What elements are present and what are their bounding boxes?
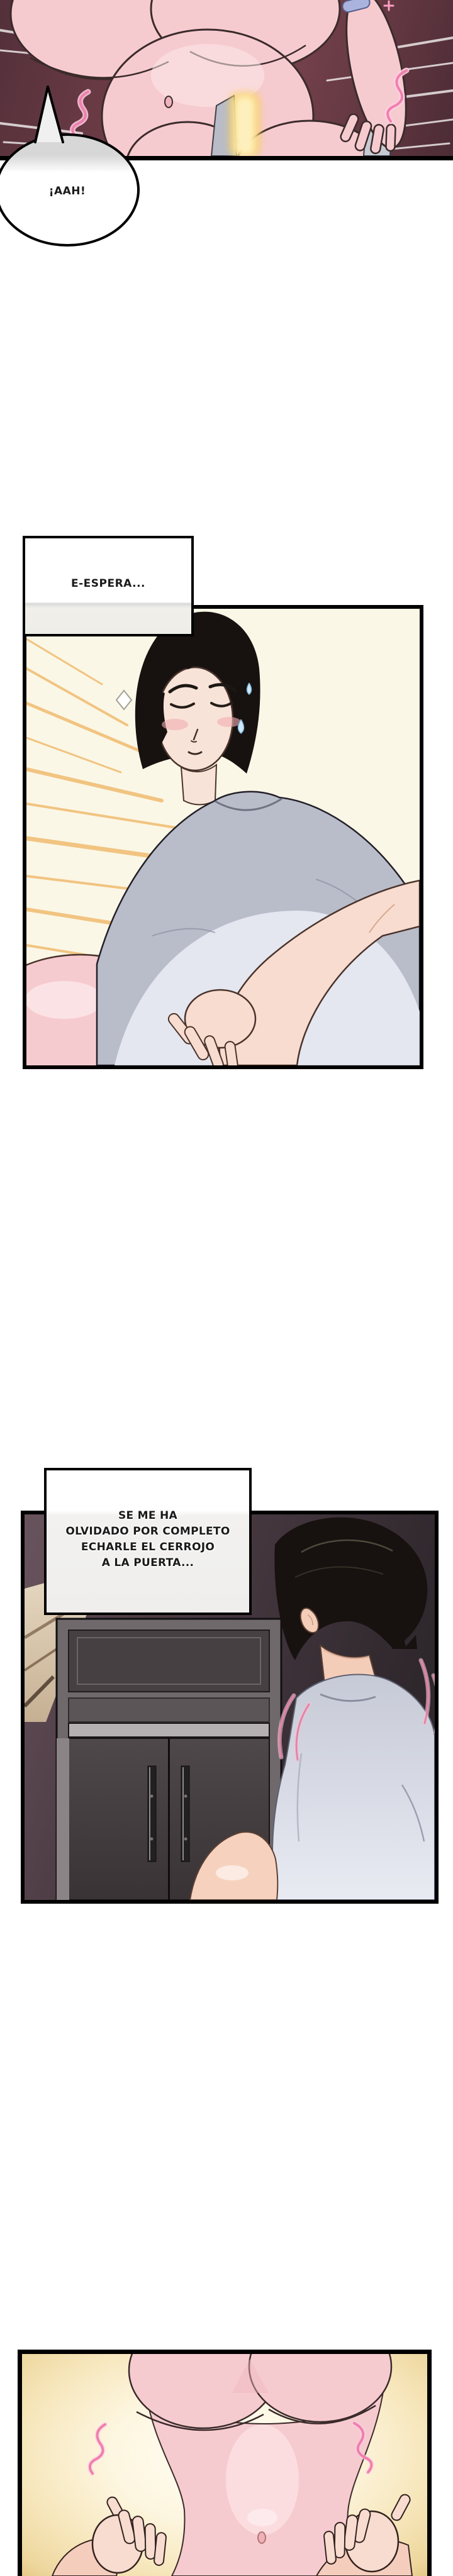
caption2-line: ECHARLE EL CERROJO [47, 1540, 249, 1555]
man-head [135, 612, 260, 805]
caption2-line: SE ME HA [47, 1508, 249, 1524]
glow-light [230, 93, 259, 156]
speech-bubble-tail [29, 84, 70, 145]
panel4-artwork [22, 2354, 427, 2576]
panel2-artwork [26, 609, 420, 1065]
left-hand [92, 2495, 167, 2573]
webtoon-page: ¡AAH! E-ESPERA... [0, 0, 453, 2576]
sparkle-diamond [116, 691, 131, 709]
wardrobe-light-strip [69, 1723, 269, 1737]
caption2-line: OLVIDADO POR COMPLETO [47, 1524, 249, 1540]
speech-bubble: ¡AAH! [0, 133, 140, 247]
navel [258, 2532, 266, 2543]
comic-panel-2 [23, 605, 423, 1069]
caption1-text: E-ESPERA... [71, 577, 145, 590]
caption-box-2: SE ME HA OLVIDADO POR COMPLETO ECHARLE E… [44, 1468, 252, 1615]
sparkle-fx [384, 1, 393, 10]
comic-panel-4 [18, 2350, 432, 2576]
caption2-line: A LA PUERTA... [47, 1555, 249, 1571]
speech-bubble-text: ¡AAH! [0, 136, 137, 244]
caption-box-1: E-ESPERA... [23, 536, 194, 636]
